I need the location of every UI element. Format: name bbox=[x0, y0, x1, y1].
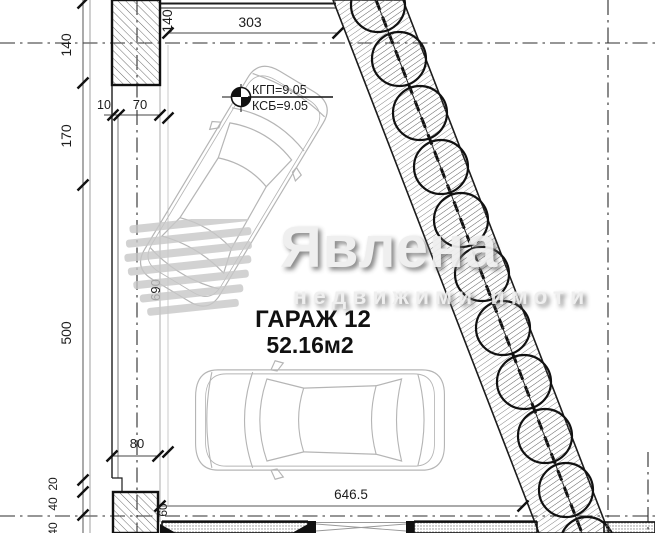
dim-left-140: 140 bbox=[58, 33, 74, 57]
dim-left-20: 20 bbox=[46, 477, 60, 491]
round-column bbox=[497, 355, 551, 409]
dim-left-170: 170 bbox=[58, 124, 74, 148]
door-jamb-left bbox=[308, 521, 316, 533]
dim-bottom-646: 646.5 bbox=[334, 487, 368, 502]
round-column bbox=[393, 86, 447, 140]
dim-top-303: 303 bbox=[238, 14, 262, 30]
left-dimension-chain: 140 170 500 20 40 40 bbox=[46, 0, 90, 533]
column-bottom-left bbox=[113, 492, 158, 533]
top-dimension-chain: 303 140 bbox=[159, 9, 344, 38]
dim-left-500: 500 bbox=[58, 321, 74, 345]
watermark-flag-icon bbox=[124, 219, 274, 334]
watermark-tagline: недвижими имоти bbox=[293, 283, 590, 310]
top-wall bbox=[160, 4, 336, 9]
door-opening bbox=[316, 523, 406, 532]
area-label: 52.16м2 bbox=[266, 332, 353, 358]
dim-wall-10: 10 bbox=[97, 98, 111, 112]
car-bottom bbox=[196, 361, 445, 480]
dim-top-140: 140 bbox=[159, 9, 175, 33]
level-text-kgp: КГП=9.05 bbox=[252, 83, 307, 97]
door-jamb-right bbox=[406, 521, 414, 533]
round-column bbox=[372, 32, 426, 86]
floor-plan: 140 170 500 20 40 40 303 140 10 70 690 8… bbox=[0, 0, 655, 533]
level-text-ksb: КСБ=9.05 bbox=[252, 99, 308, 113]
round-column bbox=[414, 140, 468, 194]
dim-offset-60: 60 bbox=[156, 503, 170, 517]
round-column bbox=[518, 409, 572, 463]
dim-niche-80: 80 bbox=[130, 436, 144, 451]
dim-left-40a: 40 bbox=[46, 497, 60, 511]
watermark-brand: Явлена bbox=[280, 214, 498, 281]
dim-pier-70: 70 bbox=[133, 97, 147, 112]
column-top-left bbox=[112, 0, 160, 85]
round-column bbox=[539, 463, 593, 517]
dim-left-40b: 40 bbox=[46, 522, 60, 533]
level-marker-icon bbox=[232, 88, 242, 98]
